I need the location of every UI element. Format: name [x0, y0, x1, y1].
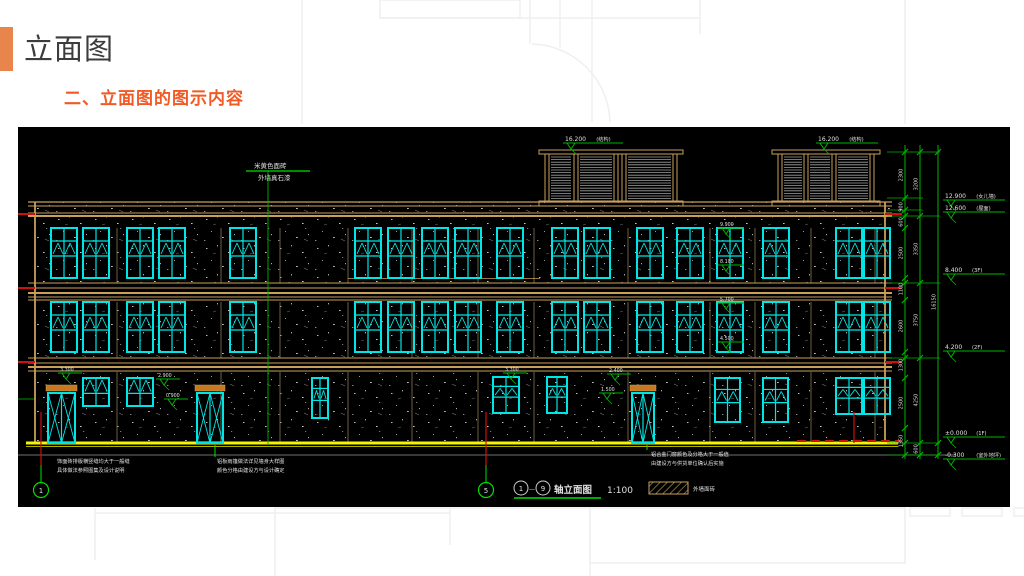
svg-text:—: —: [529, 486, 535, 493]
svg-text:3.300: 3.300: [60, 367, 74, 373]
svg-text:4.200: 4.200: [945, 344, 962, 351]
penthouse-right: [772, 150, 880, 206]
svg-text:1350: 1350: [899, 435, 905, 448]
elevation-marker: 16.200(结构): [816, 135, 878, 154]
svg-text:2500: 2500: [899, 247, 905, 260]
svg-text:12.900: 12.900: [945, 193, 966, 200]
note: 饰面砖排版横竖缝均大于一般缝具体做法参照图集及设计说明: [57, 457, 130, 474]
svg-text:3750: 3750: [914, 314, 920, 327]
svg-text:(室外地坪): (室外地坪): [976, 451, 1001, 459]
svg-text:4.500: 4.500: [720, 336, 734, 342]
svg-text:铝板雨篷做法详见墙身大样图: 铝板雨篷做法详见墙身大样图: [217, 457, 284, 465]
presentation-slide: { "header": { "accent_color": "#E8854D",…: [0, 0, 1024, 576]
svg-text:2.400: 2.400: [609, 368, 623, 374]
svg-text:2.900: 2.900: [158, 373, 172, 379]
note: 铝板雨篷做法详见墙身大样图颜色分格由建设方与设计确定: [215, 445, 284, 474]
elevation-marker: -0.300(室外地坪): [943, 451, 1005, 470]
svg-text:1:100: 1:100: [607, 486, 633, 496]
svg-text:(3F): (3F): [972, 268, 982, 274]
svg-text:饰面砖排版横竖缝均大于一般缝: 饰面砖排版横竖缝均大于一般缝: [57, 457, 130, 465]
svg-text:9: 9: [541, 485, 545, 493]
svg-text:铝合金门窗颜色及分格大于一般值: 铝合金门窗颜色及分格大于一般值: [651, 450, 729, 458]
elevation-marker: 4.200(2F): [943, 344, 1005, 362]
svg-text:(屋面): (屋面): [976, 205, 990, 212]
svg-text:外墙真石漆: 外墙真石漆: [258, 173, 291, 182]
svg-text:9.900: 9.900: [720, 222, 734, 228]
elevation-marker: 8.400(3F): [943, 267, 1005, 285]
section-subtitle: 二、立面图的图示内容: [64, 84, 244, 109]
penthouse-left: [539, 150, 683, 206]
svg-text:(女儿墙): (女儿墙): [976, 192, 996, 200]
svg-text:3.300: 3.300: [505, 367, 519, 373]
svg-text:±0.000: ±0.000: [945, 430, 967, 437]
svg-text:颜色分格由建设方与设计确定: 颜色分格由建设方与设计确定: [217, 466, 284, 474]
drawing-title: 1—9轴立面图1:100: [514, 481, 633, 498]
svg-text:5.700: 5.700: [720, 297, 734, 303]
svg-text:1300: 1300: [899, 359, 905, 372]
svg-text:16150: 16150: [932, 294, 938, 310]
svg-text:1.500: 1.500: [601, 387, 615, 393]
svg-text:8.100: 8.100: [720, 259, 734, 265]
cad-elevation-drawing: 1523009006002500110026001300250013503200…: [18, 127, 1010, 507]
svg-text:16.200: 16.200: [565, 136, 586, 143]
svg-text:5: 5: [484, 487, 488, 495]
svg-text:(2F): (2F): [972, 345, 982, 351]
svg-text:1: 1: [39, 487, 43, 495]
svg-text:外墙面砖: 外墙面砖: [693, 485, 716, 493]
svg-text:(1F): (1F): [976, 431, 986, 437]
svg-text:3200: 3200: [914, 178, 920, 191]
svg-text:3350: 3350: [914, 243, 920, 256]
elevation-marker: 16.200(结构): [563, 135, 623, 154]
svg-text:600: 600: [914, 444, 920, 454]
svg-text:1100: 1100: [899, 283, 905, 296]
svg-text:2500: 2500: [899, 397, 905, 410]
svg-text:轴立面图: 轴立面图: [554, 484, 592, 496]
svg-text:12.600: 12.600: [945, 205, 966, 212]
building-elevation: 1523009006002500110026001300250013503200…: [18, 135, 1005, 498]
svg-text:1: 1: [519, 485, 523, 493]
svg-text:米黄色面砖: 米黄色面砖: [254, 161, 287, 170]
elevation-marker: 12.600(屋面): [943, 205, 1005, 223]
svg-text:0.900: 0.900: [166, 393, 180, 399]
svg-text:900: 900: [899, 202, 905, 212]
svg-text:(结构): (结构): [596, 135, 610, 143]
svg-text:-0.300: -0.300: [945, 452, 965, 459]
svg-text:2300: 2300: [899, 169, 905, 182]
elevation-marker: ±0.000(1F): [943, 430, 1005, 448]
svg-text:600: 600: [899, 217, 905, 227]
accent-bar: [0, 27, 13, 71]
svg-text:4250: 4250: [914, 394, 920, 407]
page-title: 立面图: [24, 26, 114, 68]
svg-text:(结构): (结构): [849, 135, 863, 143]
svg-text:8.400: 8.400: [945, 267, 962, 274]
svg-text:具体做法参照图集及设计说明: 具体做法参照图集及设计说明: [57, 466, 124, 474]
legend-swatch: 外墙面砖: [649, 482, 716, 494]
note: 铝合金门窗颜色及分格大于一般值由建设方与供货单位确认后实施: [647, 445, 729, 467]
svg-text:2600: 2600: [899, 320, 905, 333]
svg-text:16.200: 16.200: [818, 136, 839, 143]
svg-text:由建设方与供货单位确认后实施: 由建设方与供货单位确认后实施: [651, 459, 724, 467]
dimension-chains: 2300900600250011002600130025001350320033…: [887, 145, 1005, 470]
